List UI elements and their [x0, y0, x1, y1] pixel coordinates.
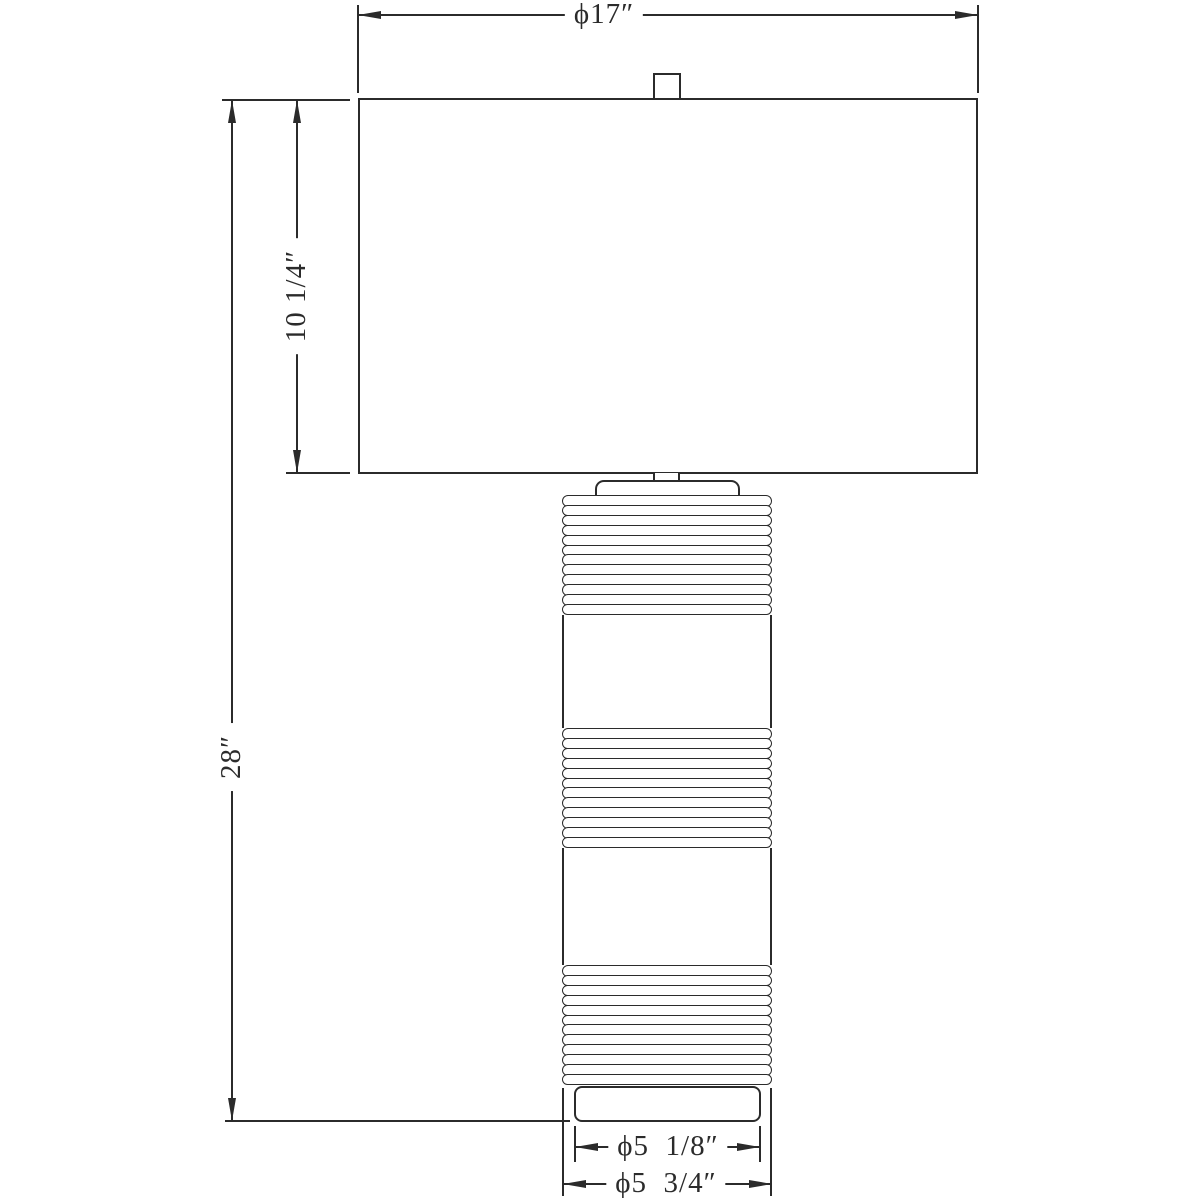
dimension-line-shade-diameter: [358, 14, 978, 16]
dimension-arrow-up: [228, 100, 236, 123]
rib: [562, 1074, 772, 1086]
lamp-technical-drawing: ϕ17″ 28″ 10 1/4″ ϕ5 1/8″ ϕ5 3/4″: [0, 0, 1200, 1200]
dimension-arrow-up: [293, 100, 301, 123]
dimension-arrow-right: [737, 1143, 760, 1151]
rib: [562, 837, 772, 849]
rib: [562, 604, 772, 616]
base-diameter-label: ϕ5 1/8″: [608, 1131, 727, 1163]
dimension-arrow-down: [293, 450, 301, 473]
dimension-arrow-left: [563, 1180, 586, 1188]
dimension-arrow-right: [749, 1180, 772, 1188]
lamp-body: [562, 495, 772, 1085]
dimension-arrow-right: [955, 11, 978, 19]
extension-line-bottom: [225, 1120, 570, 1122]
dimension-arrow-down: [228, 1098, 236, 1121]
shade-diameter-label: ϕ17″: [565, 0, 643, 31]
dimension-arrow-left: [358, 11, 381, 19]
rib-section-3: [562, 965, 772, 1085]
body-diameter-label: ϕ5 3/4″: [606, 1168, 725, 1200]
dimension-line-overall-height: [231, 100, 233, 1121]
dimension-arrow-left: [575, 1143, 598, 1151]
lamp-shade: [358, 98, 978, 474]
rib-section-2: [562, 728, 772, 848]
lamp-finial: [653, 73, 681, 101]
rib-section-1: [562, 495, 772, 615]
lamp-base: [574, 1086, 761, 1122]
overall-height-label: 28″: [216, 723, 248, 791]
extension-line-top: [222, 99, 350, 101]
smooth-section-1: [562, 615, 772, 728]
shade-height-label: 10 1/4″: [281, 238, 313, 354]
smooth-section-2: [562, 848, 772, 965]
